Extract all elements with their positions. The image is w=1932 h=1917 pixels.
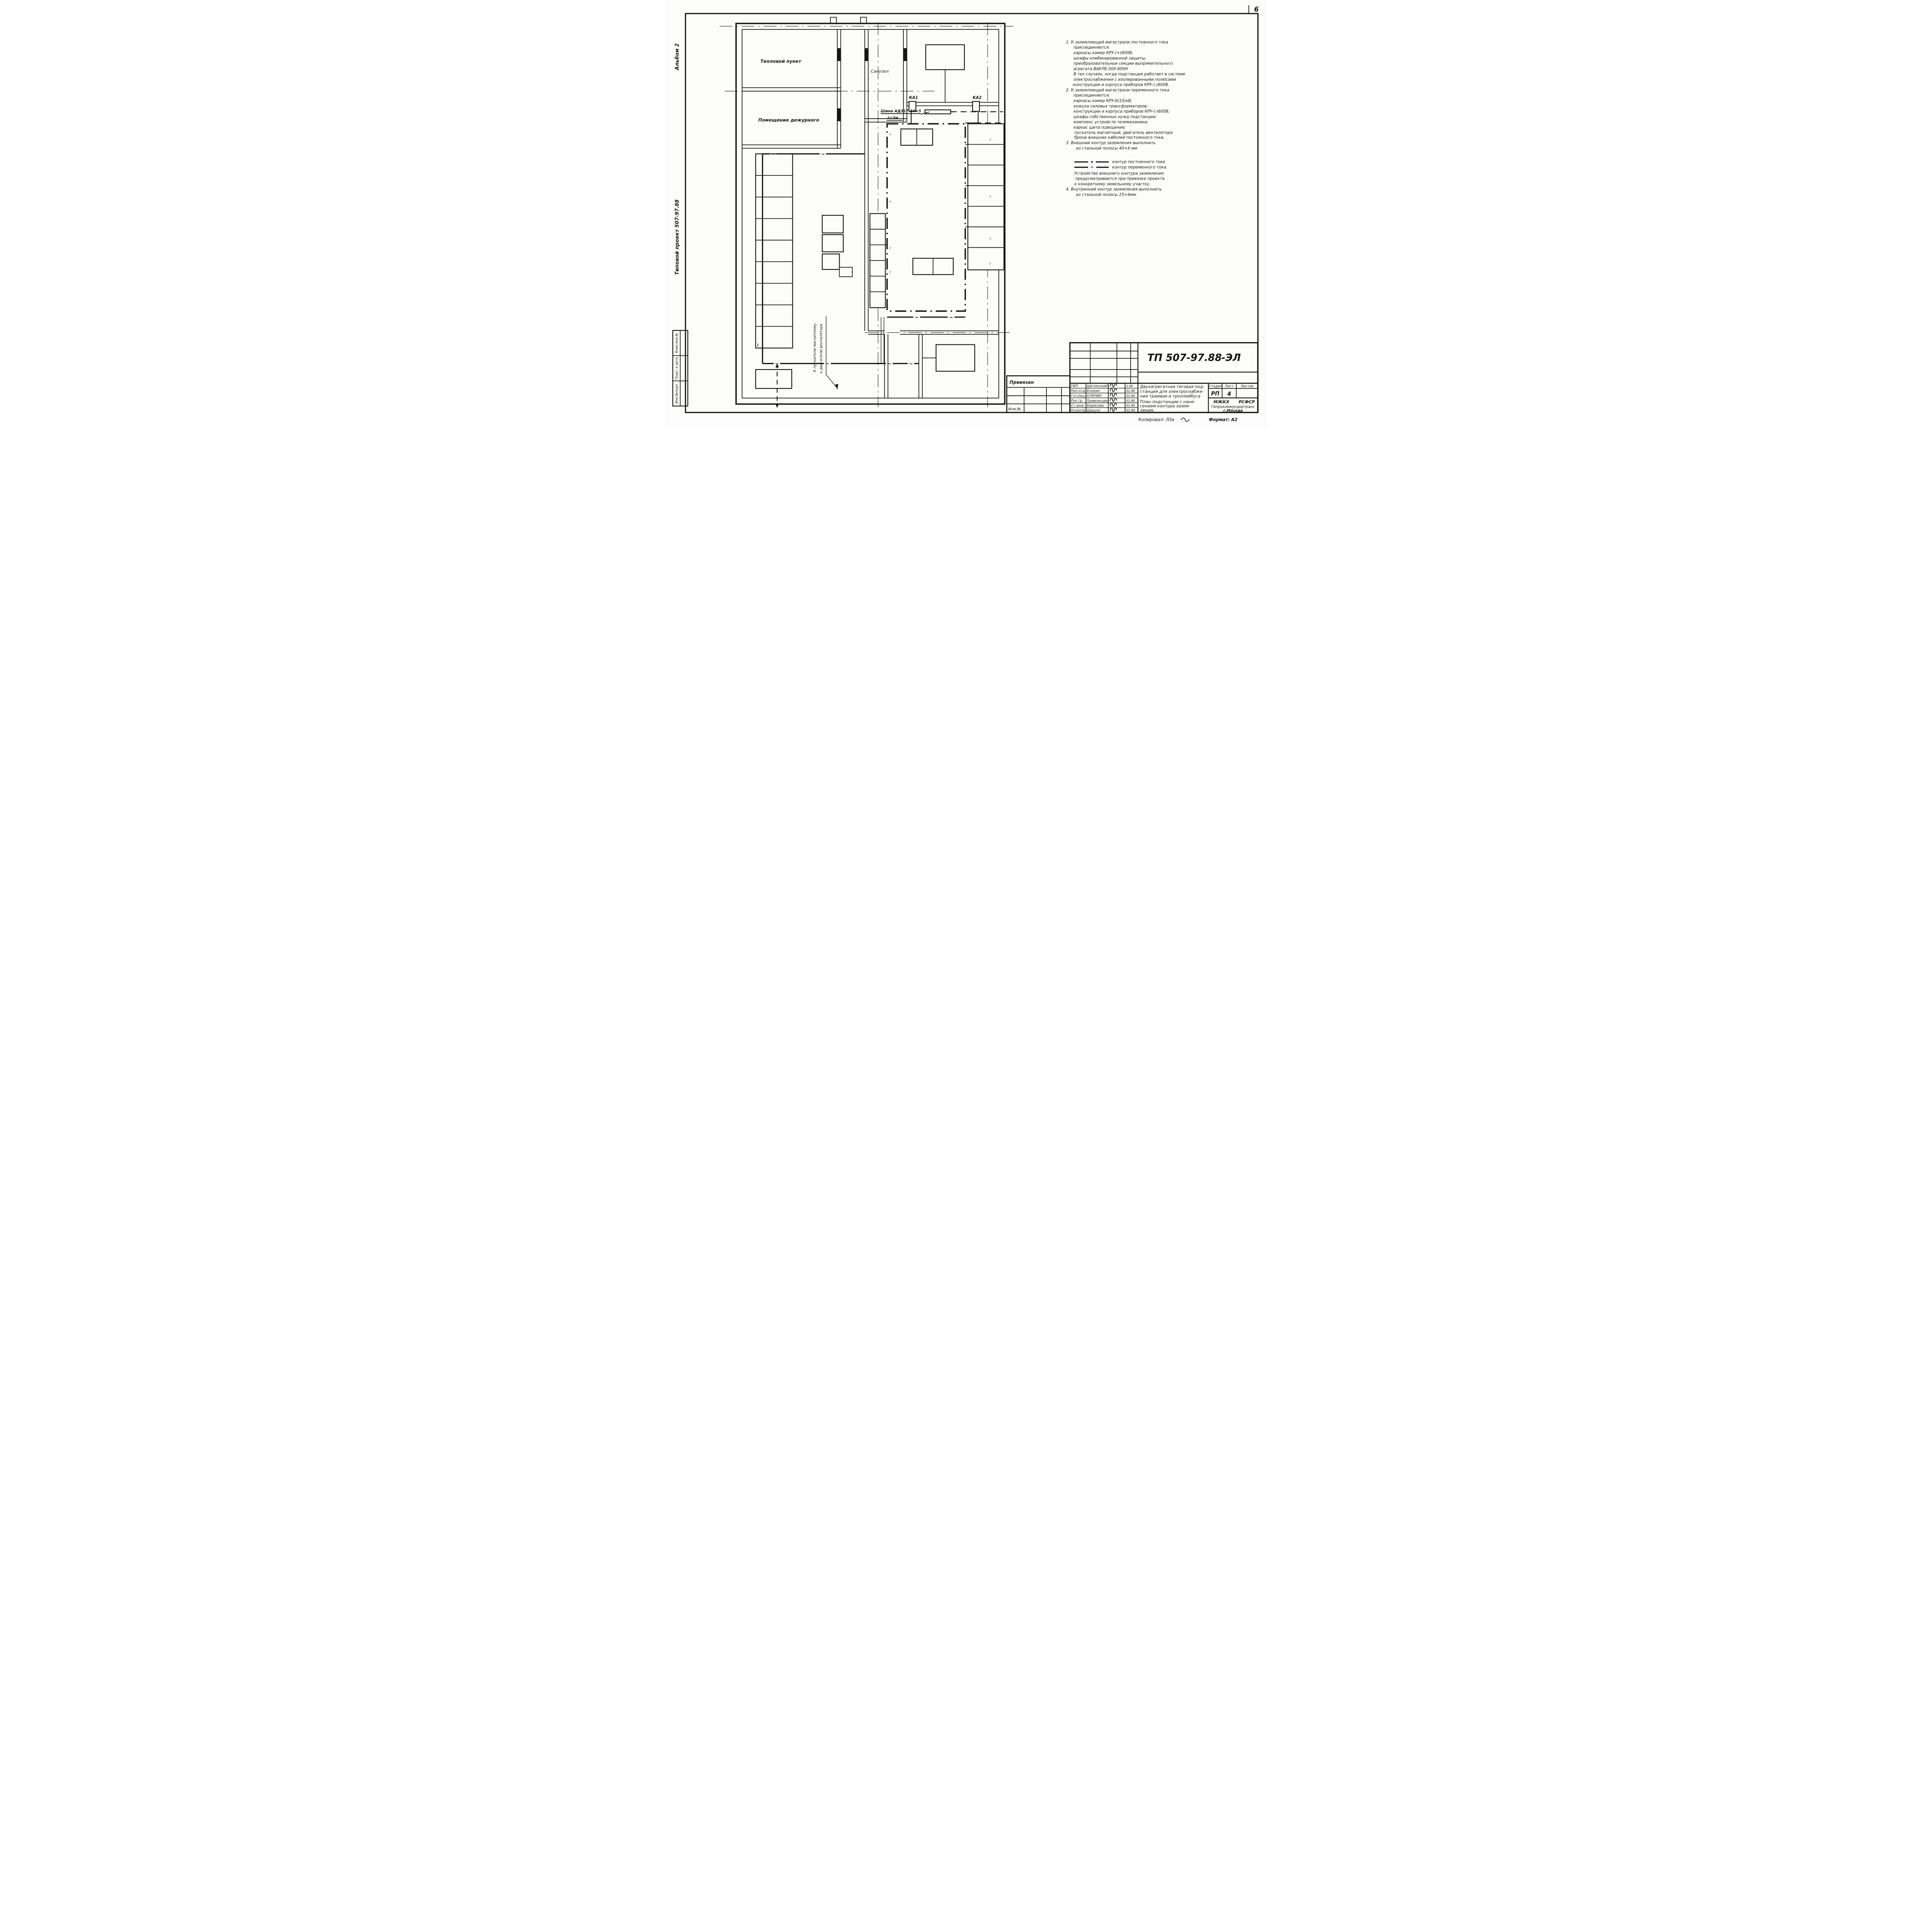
svg-text:02.88: 02.88 — [1126, 399, 1135, 402]
format-label: Формат: А2 — [1209, 417, 1238, 422]
ka2-box — [973, 101, 980, 111]
svg-text:из стальной полосы 40×4 мм: из стальной полосы 40×4 мм — [1076, 146, 1137, 151]
svg-text:кожуха силовых трансформаторов: кожуха силовых трансформаторов; — [1073, 104, 1148, 109]
svg-text:г: г — [889, 133, 891, 136]
svg-text:Привезенцева: Привезенцева — [1087, 399, 1109, 402]
legend-dc-label: контур постоянного тока — [1112, 160, 1165, 164]
footer: Копировал: ЛЗа Формат: А2 — [1138, 417, 1238, 422]
svg-text:~: ~ — [909, 361, 913, 367]
svg-text:шкафы комбинированной защиты;: шкафы комбинированной защиты; — [1073, 56, 1146, 61]
svg-text:г: г — [889, 271, 891, 274]
svg-text:к двигателю вентилятора: к двигателю вентилятора — [819, 323, 823, 373]
title-block: ТП 507-97.88 -ЭЛ ГИП Щетинский 2.88 Нач.… — [1007, 343, 1258, 413]
ka1-label: КА1 — [909, 96, 918, 100]
svg-text:каркасы камер КРУ-6(10)кВ;: каркасы камер КРУ-6(10)кВ; — [1073, 99, 1132, 103]
project-label: Типовой проект 507-97.88 — [675, 199, 680, 275]
svg-text:конструкции и корпуса приборов: конструкции и корпуса приборов КРУ-(-)60… — [1073, 109, 1170, 114]
svg-text:г: г — [990, 262, 992, 266]
svg-text:Шина АД31Т-50×5: Шина АД31Т-50×5 — [881, 109, 921, 113]
svg-text:КЛЯЧИН: КЛЯЧИН — [1087, 394, 1102, 398]
svg-text:Шишло: Шишло — [1087, 409, 1100, 413]
svg-text:-конструкции и корпуса приборо: -конструкции и корпуса приборов КРУ-(-)6… — [1072, 83, 1169, 87]
svg-text:шкафы собственных нужд подстан: шкафы собственных нужд подстанции; — [1073, 114, 1156, 119]
sheet-corner-number: 6 — [1254, 6, 1259, 14]
svg-text:1. К заземляющей магистрали по: 1. К заземляющей магистрали постоянного … — [1066, 40, 1168, 44]
svg-text:~: ~ — [771, 152, 775, 157]
svg-text:Н.контр.: Н.контр. — [1071, 409, 1087, 413]
inventory-label: Инв.№ — [1008, 407, 1021, 412]
stamp-vzam-inv: Взам.инв.№ — [675, 333, 679, 353]
svg-text:Нач.отд: Нач.отд — [1071, 389, 1085, 393]
svg-text:присоединяются:: присоединяются: — [1073, 94, 1110, 98]
stage-sheet-cells: Стадия Лист Листов РП 4 — [1208, 383, 1258, 398]
attached-block: Привязан Инв.№ — [1007, 376, 1070, 412]
svg-text:комплекс устройств телемеханик: комплекс устройств телемеханики; — [1073, 120, 1148, 124]
svg-text:~: ~ — [821, 152, 825, 157]
svg-text:Гл.спец.: Гл.спец. — [1071, 394, 1086, 398]
svg-text:ℓ=3м: ℓ=3м — [887, 116, 898, 120]
svg-text:~: ~ — [949, 315, 953, 320]
sheets-label: Листов — [1240, 385, 1253, 388]
doc-number: ТП 507-97.88 — [1147, 352, 1221, 364]
fan-annotation: К пускателю магнитному, к двигателю вент… — [813, 316, 838, 390]
svg-text:станция для электроснабже-: станция для электроснабже- — [1140, 389, 1204, 394]
svg-text:к конкретному земельному участ: к конкретному земельному участку. — [1074, 182, 1150, 186]
svg-text:г: г — [990, 138, 992, 142]
svg-text:г: г — [990, 195, 992, 199]
svg-text:ния трамвая и троллейбуса: ния трамвая и троллейбуса — [1140, 394, 1201, 399]
stamp-podp-data: Подп. и дата — [675, 357, 679, 379]
svg-text:г: г — [889, 200, 891, 204]
ka2-label: КА2 — [973, 96, 981, 100]
notes-block: 1. К заземляющей магистрали постоянного … — [1066, 40, 1185, 197]
svg-text:РСФСР: РСФСР — [1238, 399, 1255, 404]
svg-text:каркасы камер КРУ-(+)600В;: каркасы камер КРУ-(+)600В; — [1073, 51, 1133, 55]
kru-cells-left — [756, 154, 793, 348]
svg-text:г: г — [889, 247, 891, 250]
svg-text:Двухагрегатная тяговая под-: Двухагрегатная тяговая под- — [1140, 384, 1204, 389]
substation-plan: ~ ~ ~ ~ ~ ~ ~ ~ ~ г г г г г г г г Теплов… — [719, 17, 1013, 408]
svg-text:Ст.инж.: Ст.инж. — [1071, 404, 1085, 408]
svg-text:агрегата ВАКЛЕ-000-600Н: агрегата ВАКЛЕ-000-600Н — [1073, 67, 1128, 71]
room-label-duty-room: Помещение дежурного — [758, 117, 819, 123]
svg-text:МЖКХ: МЖКХ — [1214, 399, 1230, 404]
project-title: Двухагрегатная тяговая под- станция для … — [1140, 383, 1209, 413]
svg-text:ГИП: ГИП — [1071, 385, 1078, 388]
svg-text:присоединяются:: присоединяются: — [1073, 46, 1110, 50]
svg-text:2. К заземляющей магистрали пе: 2. К заземляющей магистрали переменного … — [1066, 88, 1169, 92]
room-label-bathroom: Санузел — [871, 69, 889, 74]
svg-text:преобразовательные секции выпр: преобразовательные секции выпрямительног… — [1073, 61, 1172, 66]
svg-text:г: г — [990, 237, 992, 241]
svg-text:Борисова: Борисова — [1087, 404, 1104, 408]
organisation-cell: МЖКХ РСФСР Гипрокоммундортранс г.Москва — [1211, 399, 1255, 413]
svg-text:4. Внутренний контур заземлени: 4. Внутренний контур заземления выполнит… — [1066, 187, 1162, 192]
svg-text:02.88: 02.88 — [1126, 389, 1135, 393]
svg-text:из стальной полосы 25×4мм.: из стальной полосы 25×4мм. — [1076, 193, 1137, 197]
svg-text:Устройство внешнего контура за: Устройство внешнего контура заземления — [1074, 172, 1163, 176]
svg-text:пускатель магнитный; двигатель: пускатель магнитный; двигатель вентилято… — [1074, 131, 1172, 135]
svg-text:~: ~ — [775, 361, 779, 367]
svg-text:3. Внешний контур заземления в: 3. Внешний контур заземления выполнить — [1066, 141, 1156, 145]
svg-text:2.88: 2.88 — [1126, 385, 1133, 388]
attached-label: Привязан — [1010, 380, 1034, 385]
stage-value: РП — [1211, 391, 1219, 397]
svg-text:каркас щита освещения;: каркас щита освещения; — [1073, 126, 1126, 130]
drawing-canvas: 6 Альбом 2 Типовой проект 507-97.88 Взам… — [665, 0, 1267, 426]
ac-tilde-symbol: ~ — [1090, 164, 1094, 170]
copied-by-label: Копировал: ЛЗа — [1138, 417, 1174, 422]
kru-cells-right — [968, 124, 1004, 270]
svg-text:02.88: 02.88 — [1126, 394, 1135, 398]
dc-dot-symbol — [1091, 161, 1093, 163]
svg-text:~: ~ — [915, 315, 919, 320]
svg-text:02.88: 02.88 — [1126, 409, 1135, 412]
svg-text:К пускателю магнитному,: К пускателю магнитному, — [813, 323, 817, 372]
sheet-label: Лист — [1225, 385, 1234, 388]
svg-text:ления.: ления. — [1140, 408, 1155, 413]
svg-text:Щетинский: Щетинский — [1087, 385, 1108, 388]
legend-ac-label: контур переменного тока. — [1112, 165, 1167, 170]
svg-text:электроснабжения с изолированн: электроснабжения с изолированными полюса… — [1073, 77, 1176, 82]
svg-text:Гипрокоммундортранс: Гипрокоммундортранс — [1211, 405, 1255, 409]
svg-text:предусматривается при привязке: предусматривается при привязке проекта — [1075, 177, 1165, 181]
svg-text:~: ~ — [887, 361, 891, 367]
stage-label: Стадия — [1209, 385, 1222, 388]
sheet-value: 4 — [1227, 391, 1231, 397]
room-label-heat-point: Тепловой пункт — [760, 58, 802, 64]
svg-text:брони внешних кабелей постоянн: брони внешних кабелей постоянного тока. — [1074, 135, 1165, 140]
svg-text:Рук.гр.: Рук.гр. — [1071, 399, 1083, 403]
legend: контур постоянного тока ~ контур перемен… — [1074, 160, 1167, 170]
svg-text:02.88: 02.88 — [1126, 404, 1135, 407]
bus-bar — [921, 110, 951, 114]
svg-text:~: ~ — [755, 343, 761, 347]
stamp-inv-podl: Инв.№подл. — [675, 383, 679, 403]
svg-text:В тех случаях, когда подстанци: В тех случаях, когда подстанция работает… — [1073, 72, 1185, 77]
doc-suffix: -ЭЛ — [1221, 352, 1241, 364]
svg-text:Блохин: Блохин — [1087, 389, 1100, 393]
svg-text:г.Москва: г.Москва — [1223, 409, 1243, 413]
signature-rows: ГИП Щетинский 2.88 Нач.отд Блохин 02.88 … — [1070, 383, 1138, 413]
album-label: Альбом 2 — [675, 43, 680, 70]
copied-by-signature — [1181, 418, 1189, 421]
drawing-sheet: 6 Альбом 2 Типовой проект 507-97.88 Взам… — [665, 0, 1267, 426]
